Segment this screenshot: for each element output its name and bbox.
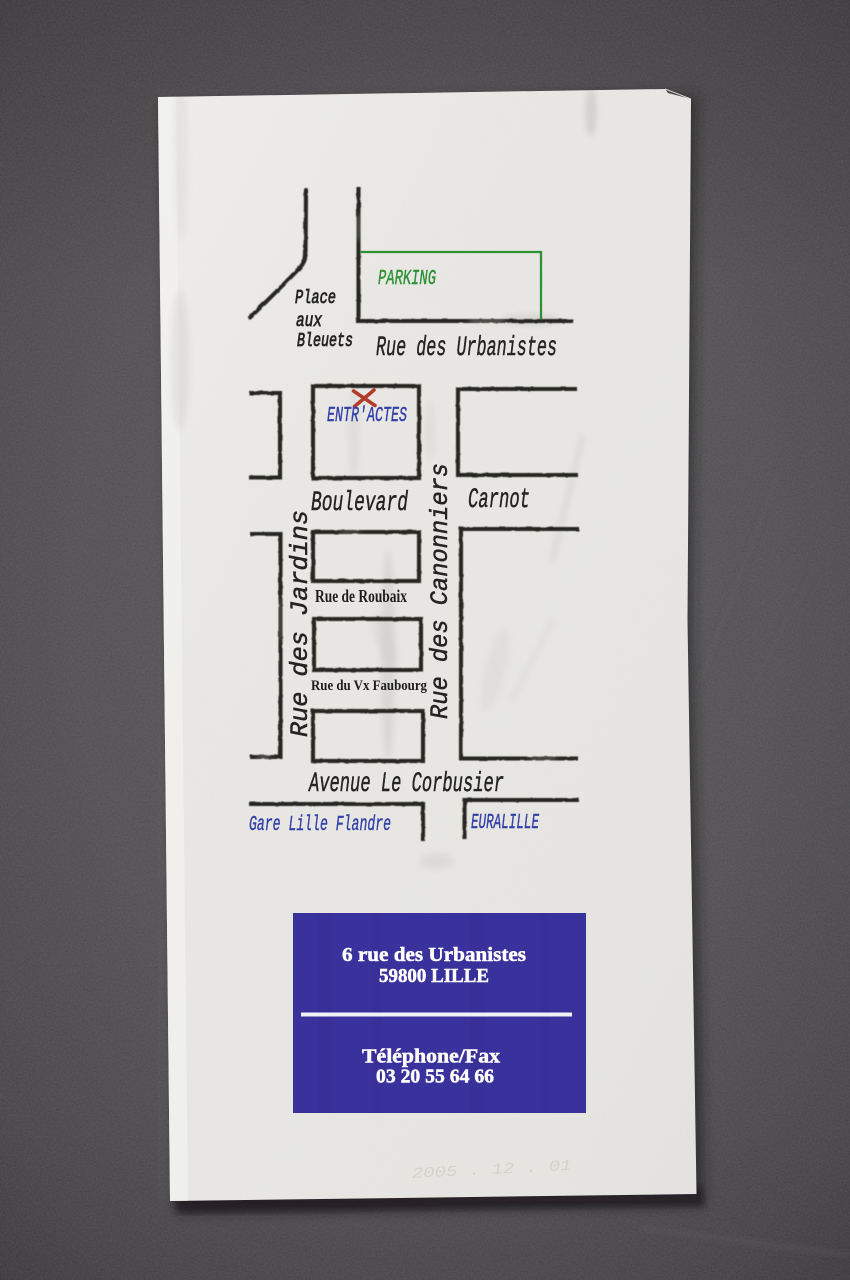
svg-text:Rue des Urbanistes: Rue des Urbanistes	[376, 333, 557, 364]
svg-text:Rue de Roubaix: Rue de Roubaix	[315, 586, 407, 606]
svg-text:Rue des Jardins: Rue des Jardins	[286, 510, 315, 737]
svg-text:EURALILLE: EURALILLE	[471, 812, 539, 835]
svg-text:59800 LILLE: 59800 LILLE	[379, 965, 489, 987]
svg-text:ENTR'ACTES: ENTR'ACTES	[327, 405, 407, 428]
svg-text:Place: Place	[295, 287, 336, 309]
svg-text:Gare Lille Flandre: Gare Lille Flandre	[249, 814, 391, 837]
svg-text:Bleuets: Bleuets	[297, 330, 353, 352]
svg-text:aux: aux	[296, 310, 322, 332]
svg-text:Avenue Le Corbusier: Avenue Le Corbusier	[308, 769, 504, 800]
svg-text:Rue des Canonniers: Rue des Canonniers	[426, 463, 455, 719]
svg-text:Boulevard: Boulevard	[311, 488, 408, 519]
svg-text:6 rue des Urbanistes: 6 rue des Urbanistes	[342, 944, 526, 966]
svg-text:03 20 55 64 66: 03 20 55 64 66	[376, 1066, 494, 1088]
svg-text:PARKING: PARKING	[378, 268, 436, 291]
svg-text:Téléphone/Fax: Téléphone/Fax	[362, 1046, 500, 1068]
svg-text:Rue du Vx Faubourg: Rue du Vx Faubourg	[311, 678, 427, 694]
svg-text:Carnot: Carnot	[468, 485, 530, 516]
